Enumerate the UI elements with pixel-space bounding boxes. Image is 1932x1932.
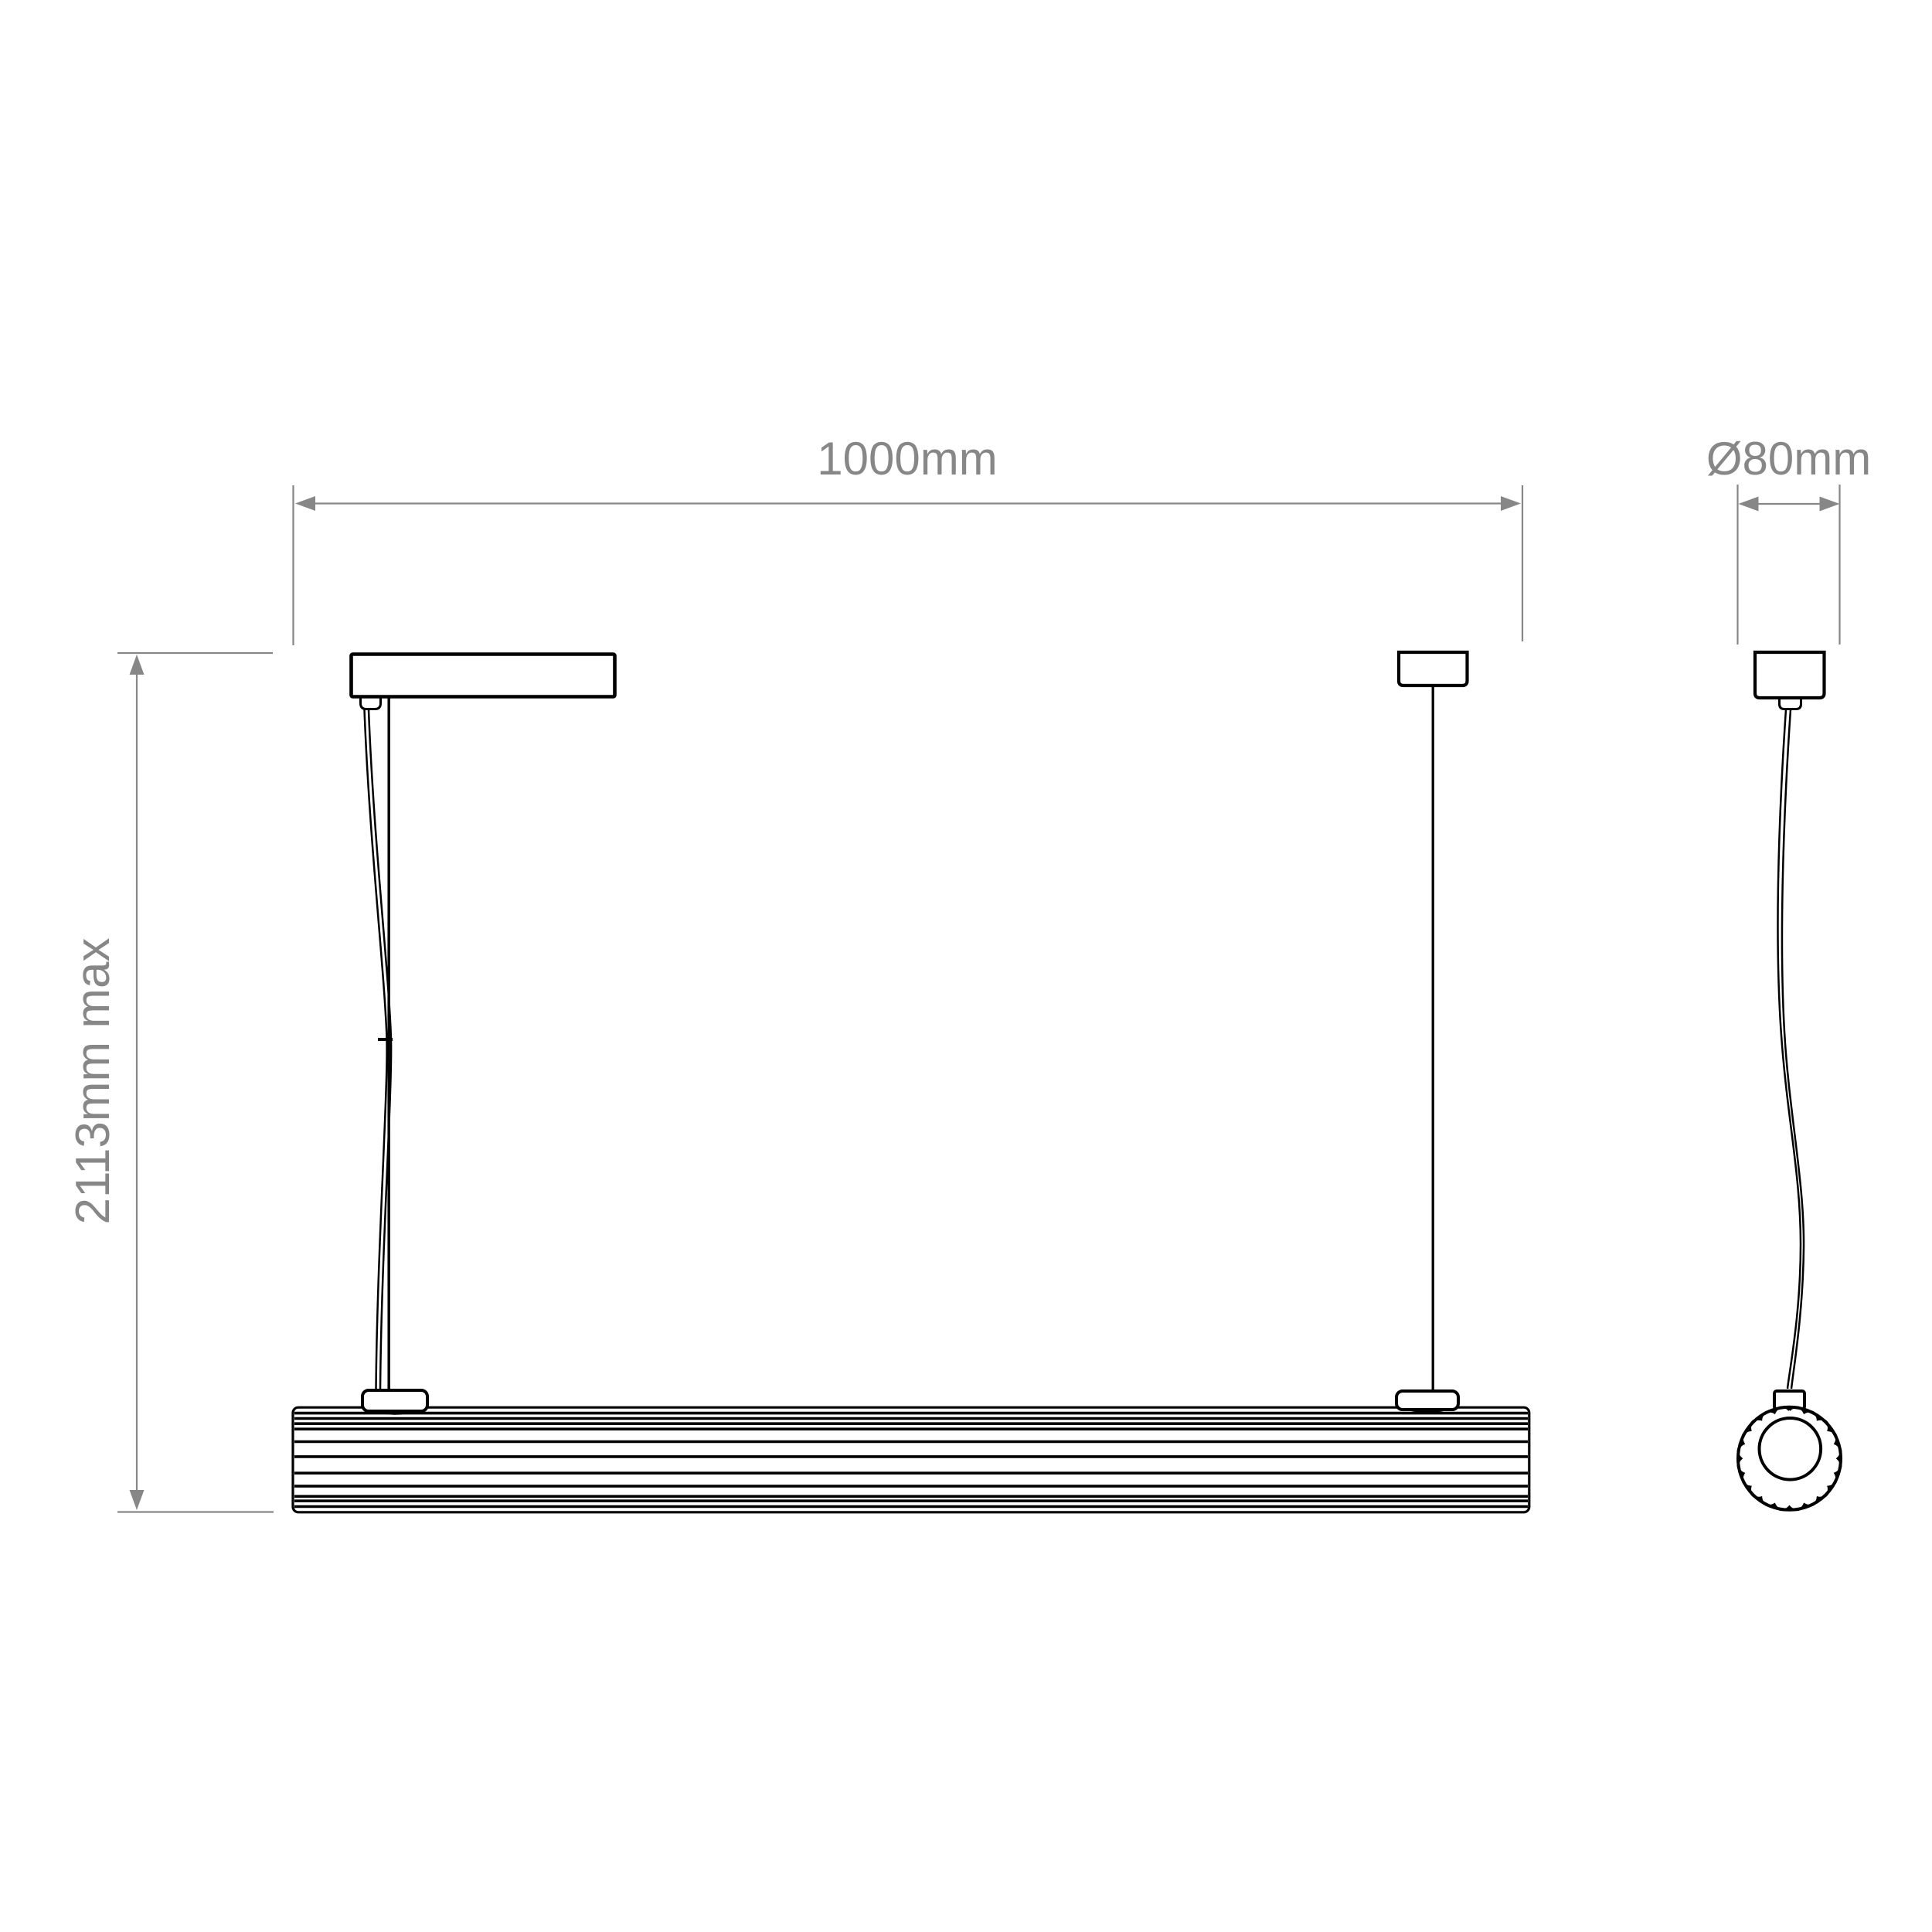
svg-text:Ø80mm: Ø80mm — [1706, 433, 1871, 485]
svg-text:2113mm max: 2113mm max — [66, 938, 120, 1225]
svg-text:1000mm: 1000mm — [817, 433, 997, 485]
